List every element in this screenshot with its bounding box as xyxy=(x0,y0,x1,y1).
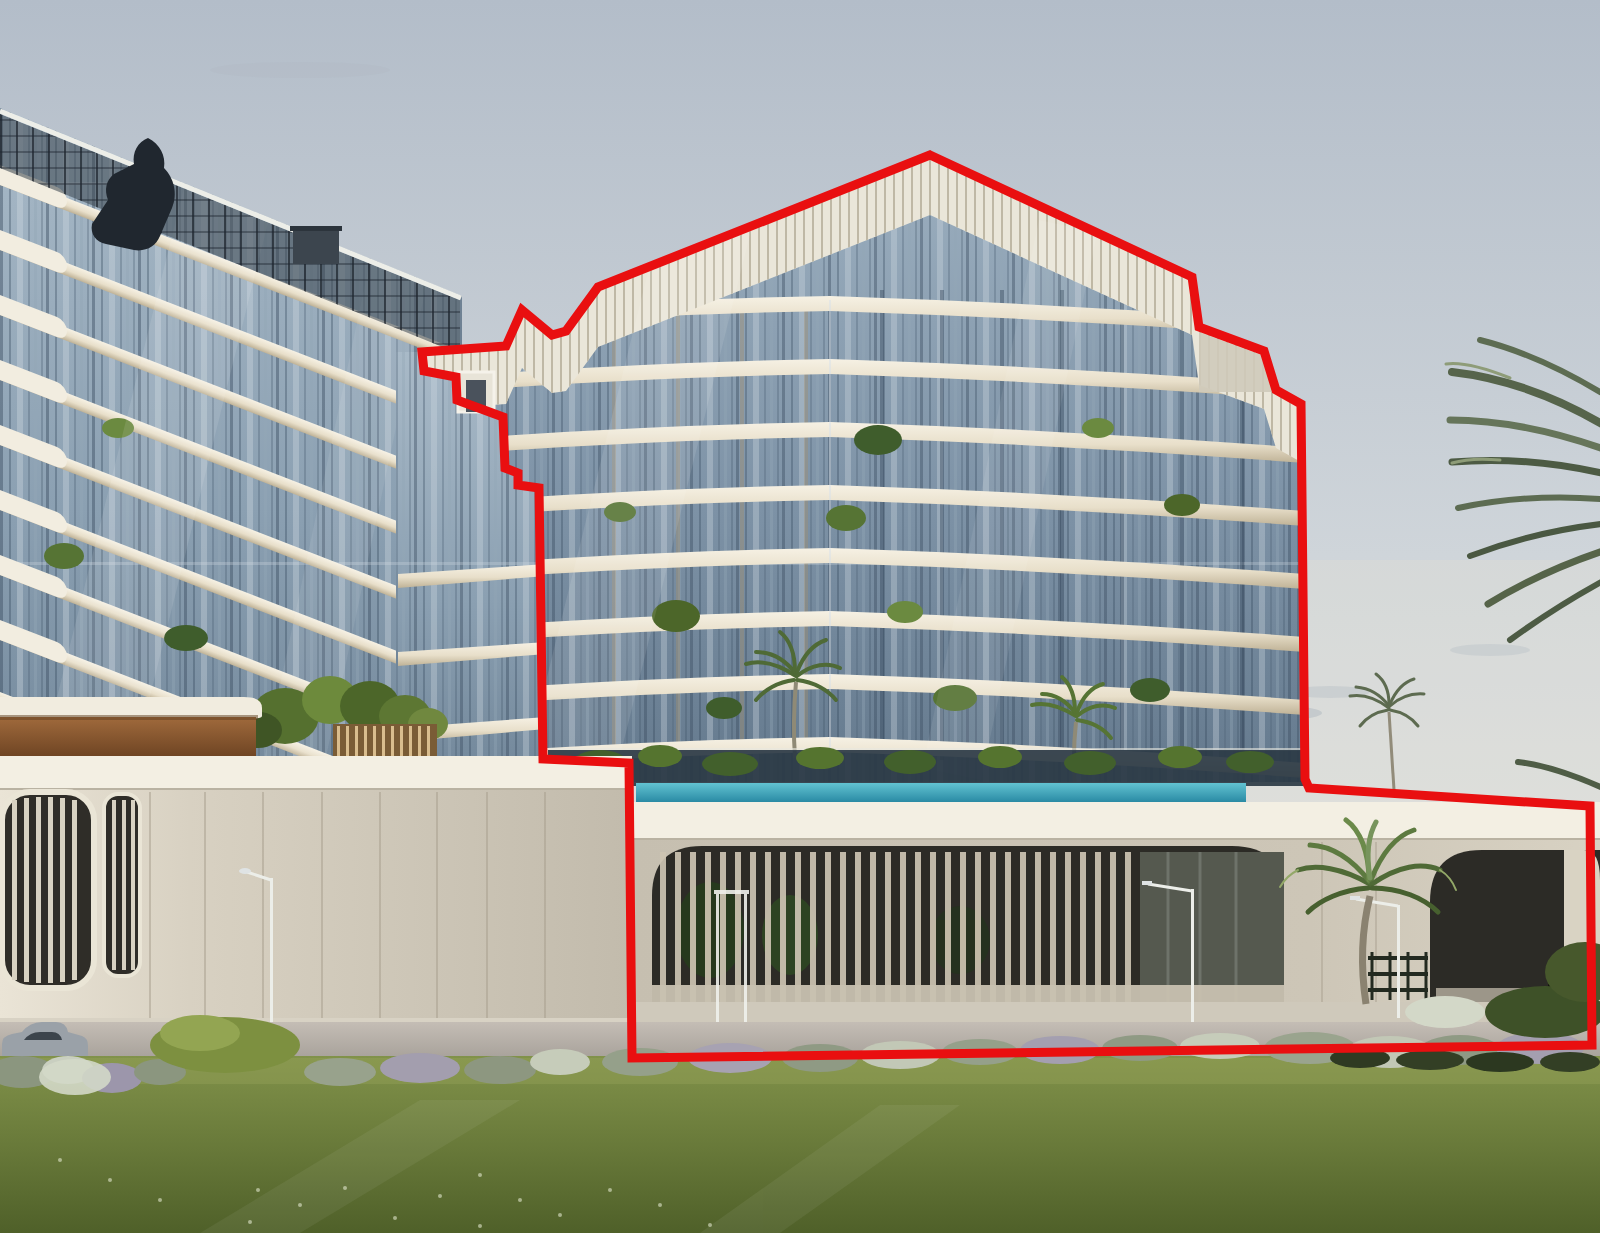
left-louver-window xyxy=(2,792,140,988)
architectural-rendering: 3D architectural rendering of a glass re… xyxy=(0,0,1600,1233)
roof-pavilion xyxy=(290,226,342,264)
podium-right xyxy=(632,802,1600,1024)
rendering-canvas: 3D architectural rendering of a glass re… xyxy=(0,0,1600,1233)
podium-left-fascia xyxy=(0,756,632,790)
podium-right-fascia xyxy=(632,802,1600,840)
amenity-deck xyxy=(548,745,1308,806)
pergola-slats xyxy=(333,724,437,757)
